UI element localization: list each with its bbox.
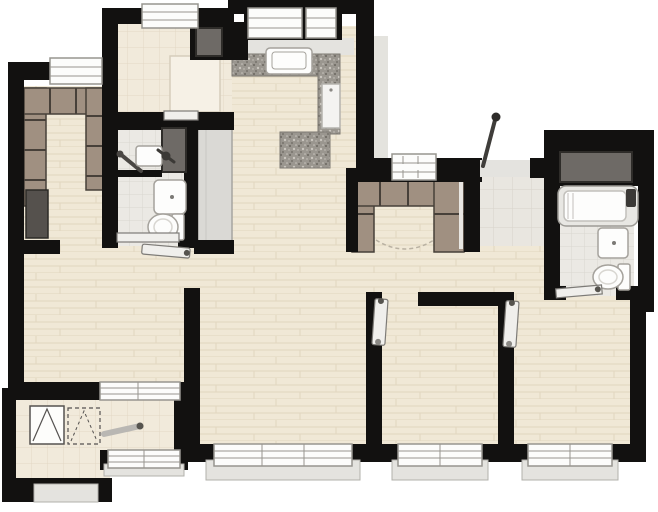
wall <box>8 250 24 396</box>
wall <box>544 158 560 298</box>
wall <box>464 176 480 252</box>
vanity-drain <box>170 195 174 199</box>
window-entry-closet <box>392 154 436 180</box>
bath-left-sliding-door <box>117 233 179 242</box>
balcony-sill <box>34 484 98 502</box>
floor-plan-canvas <box>0 0 658 512</box>
window-flex-bottom <box>104 450 184 476</box>
wall <box>8 62 24 252</box>
duct-shaft-bath-right <box>560 152 632 182</box>
bedroom-right-door-leaf <box>503 300 519 348</box>
entry-threshold <box>480 160 530 177</box>
entry-door-knob <box>492 113 501 122</box>
window-bedroom-right-bay <box>522 444 618 480</box>
closet-appliance <box>26 190 48 238</box>
duct-shaft-kitchen <box>196 28 222 56</box>
wall <box>102 8 118 248</box>
entry-door-leaf <box>483 120 495 166</box>
kitchen-peninsula <box>280 132 330 168</box>
window-kitchen-a <box>248 8 302 38</box>
wall <box>184 444 218 462</box>
vanity-drain-right <box>612 241 616 245</box>
bedroom-middle-door-leaf <box>372 298 388 346</box>
duct-shaft-bath-left <box>162 128 186 172</box>
wall <box>638 130 654 312</box>
window-utility-top <box>142 4 198 28</box>
wall <box>194 240 234 254</box>
wall <box>478 444 532 462</box>
wall <box>630 288 646 462</box>
bedroom-left-floor <box>24 250 186 390</box>
window-closet-top <box>50 58 102 84</box>
wall <box>418 292 510 306</box>
wall <box>356 12 374 172</box>
wall <box>104 232 118 248</box>
window-bedroom-middle-bay <box>392 444 488 480</box>
wall <box>348 444 402 462</box>
tub-faucet <box>626 189 636 207</box>
window-living-bay <box>206 444 360 480</box>
floor-plan <box>0 0 658 512</box>
exterior-ledge <box>374 36 388 162</box>
washer-symbol <box>30 406 64 444</box>
utility-sliding-door <box>164 111 198 120</box>
wall <box>346 172 358 252</box>
wall <box>608 444 646 462</box>
window-kitchen-b <box>306 8 336 38</box>
entry-closet-door-front <box>459 181 463 249</box>
shower-head <box>117 151 124 158</box>
window-bedroom-left-interior <box>100 382 180 400</box>
kitchen-appliance-knob <box>329 88 332 91</box>
hall-tall-cabinet <box>198 126 232 244</box>
utility-enclosure <box>170 56 220 112</box>
